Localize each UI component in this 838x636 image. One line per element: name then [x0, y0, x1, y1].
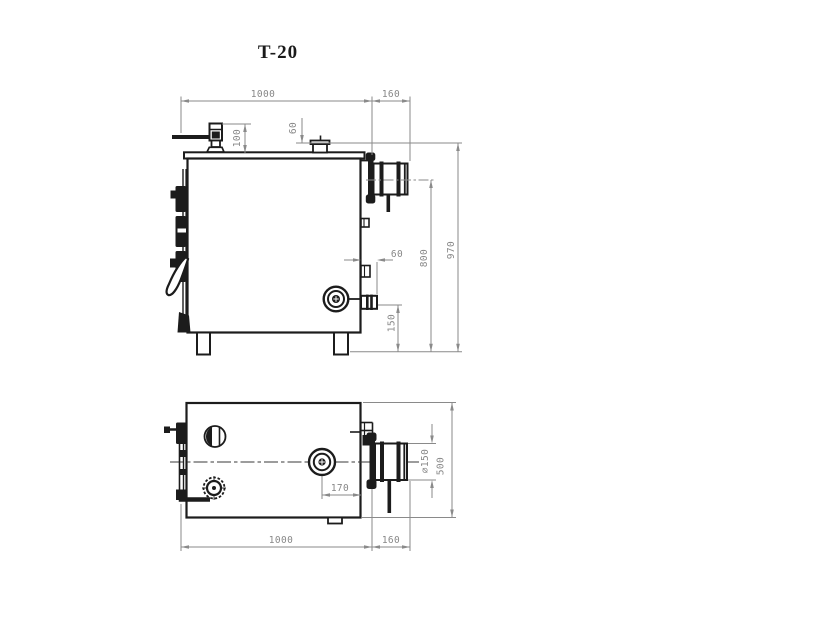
- dim-label-plan-flue-extension: 160: [382, 535, 400, 546]
- dim-label-drain-axis-height: 150: [387, 314, 398, 332]
- pipe-flange-2: [397, 162, 401, 197]
- dim-label-side-flue-extension: 160: [382, 89, 400, 100]
- hinge-top: [176, 186, 187, 212]
- left-leg: [197, 333, 210, 355]
- wall-stub-mid: [361, 266, 370, 278]
- wall-stubs: [361, 219, 370, 278]
- pipe-stub-plan: [388, 480, 392, 513]
- cap-body: [313, 144, 327, 152]
- drain-wall-stub: [361, 296, 377, 309]
- dim-label-side-width: 1000: [251, 89, 275, 100]
- drawing-page: T-20: [0, 0, 838, 636]
- boiler-body-group: [184, 152, 365, 354]
- dim-label-cap-height: 60: [288, 122, 299, 134]
- drawing-title: T-20: [258, 42, 298, 63]
- valve-stem: [212, 141, 221, 148]
- dim-label-flue-axis-height: 800: [419, 249, 430, 267]
- pipe-stub-down: [387, 195, 391, 213]
- bottom-tab: [328, 518, 342, 524]
- dim-label-flue-offset: 170: [331, 483, 349, 494]
- hinge-plan-top: [176, 423, 187, 445]
- flue-pipe: [374, 164, 408, 195]
- safety-valve: [172, 124, 224, 153]
- flue-pipe-plan: [375, 444, 407, 481]
- dim-label-overall-height: 970: [446, 241, 457, 259]
- dim-label-stub-length: 60: [391, 249, 403, 260]
- technical-drawing-canvas: T-20: [0, 0, 838, 636]
- lid-cap: [311, 136, 330, 153]
- dim-label-plan-width: 1000: [269, 535, 293, 546]
- dim-label-valve-height: 100: [232, 129, 243, 147]
- right-leg: [334, 333, 348, 355]
- side-view: 1000 160 100 60 970 800 150 60: [167, 89, 462, 355]
- dim-label-depth: 500: [436, 457, 447, 475]
- wall-stub-upper: [361, 219, 369, 228]
- dim-label-flue-diameter: ⌀150: [420, 449, 431, 473]
- flue-outlet-side: [361, 153, 408, 213]
- plan-view: 170 ⌀150 500 1000 160: [164, 403, 456, 552]
- pipe-flange-1: [380, 162, 384, 197]
- valve-top-view: [205, 426, 226, 447]
- chimney-stub-top-view: [309, 449, 335, 475]
- valve-base: [207, 147, 224, 152]
